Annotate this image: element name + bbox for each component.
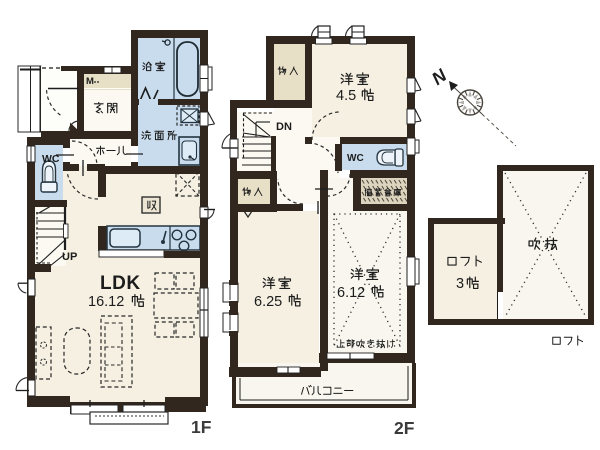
svg-text:1F: 1F [191,417,212,437]
svg-text:M: M [86,76,94,87]
svg-text:WC: WC [347,153,364,164]
svg-text:2F: 2F [394,418,415,438]
svg-text:6.12: 6.12 [337,285,365,301]
svg-text:UP: UP [62,251,77,263]
svg-text:6.25: 6.25 [254,294,282,310]
svg-text:4.5: 4.5 [336,88,356,104]
svg-text:3: 3 [456,276,464,292]
svg-text:WC: WC [42,153,60,165]
svg-text:LDK: LDK [100,273,141,294]
svg-text:DN: DN [276,121,292,133]
svg-text:16.12: 16.12 [88,294,124,310]
